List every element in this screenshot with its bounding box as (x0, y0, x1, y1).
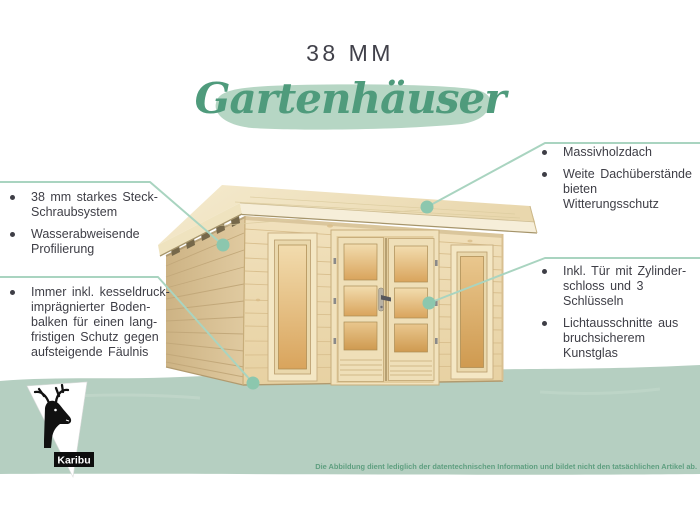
callout-line: Schraubsystem (31, 205, 158, 220)
callout-right-top: Massivholzdach Weite Dachüberstände biet… (540, 145, 698, 219)
callout-line: 38 mm starkes Steck- (31, 190, 158, 205)
callout-item: Immer inkl. kesseldruck- imprägnierter B… (8, 285, 190, 360)
callout-item: Inkl. Tür mit Zylinder- schloss und 3 Sc… (540, 264, 700, 309)
double-door (331, 230, 439, 385)
callout-line: balken für einen lang- (31, 315, 170, 330)
page-title: Gartenhäuser (0, 74, 700, 123)
leader-dot (421, 201, 434, 214)
callout-line: bruchsicherem Kunstglas (563, 331, 700, 361)
callout-line: imprägnierter Boden- (31, 300, 170, 315)
bullet-icon (542, 172, 547, 177)
callout-line: Immer inkl. kesseldruck- (31, 285, 170, 300)
left-window (268, 233, 317, 381)
bullet-icon (542, 150, 547, 155)
callout-line: Wasserabweisende (31, 227, 140, 242)
callout-item: Lichtausschnitte aus bruchsicherem Kunst… (540, 316, 700, 361)
callout-line: aufsteigende Fäulnis (31, 345, 170, 360)
garden-house (158, 185, 537, 385)
callout-left-top: 38 mm starkes Steck- Schraubsystem Wasse… (8, 190, 180, 264)
bullet-icon (10, 195, 15, 200)
bullet-icon (542, 321, 547, 326)
bullet-icon (10, 232, 15, 237)
callout-line: Lichtausschnitte aus (563, 316, 700, 331)
callout-line: Inkl. Tür mit Zylinder- (563, 264, 700, 279)
right-window (451, 245, 493, 379)
callout-line: bieten Witterungsschutz (563, 182, 698, 212)
callout-line: Massivholzdach (563, 145, 652, 160)
callout-line: schloss und 3 Schlüsseln (563, 279, 700, 309)
leader-dot (423, 297, 436, 310)
callout-line: Profilierung (31, 242, 140, 257)
callout-item: Massivholzdach (540, 145, 698, 160)
callout-line: fristigen Schutz gegen (31, 330, 170, 345)
size-label: 38 MM (0, 40, 700, 67)
callout-item: Wasserabweisende Profilierung (8, 227, 180, 257)
leader-dot (217, 239, 230, 252)
callout-line: Weite Dachüberstände (563, 167, 698, 182)
callout-left-bottom: Immer inkl. kesseldruck- imprägnierter B… (8, 285, 190, 367)
disclaimer-text: Die Abbildung dient lediglich der datent… (315, 462, 697, 471)
callout-item: Weite Dachüberstände bieten Witterungssc… (540, 167, 698, 212)
callout-item: 38 mm starkes Steck- Schraubsystem (8, 190, 180, 220)
brand-label: Karibu (57, 455, 90, 467)
leader-dot (247, 377, 260, 390)
callout-right-bottom: Inkl. Tür mit Zylinder- schloss und 3 Sc… (540, 264, 700, 368)
bullet-icon (542, 269, 547, 274)
bullet-icon (10, 290, 15, 295)
poster: Karibu 38 MM Gartenhäuser 38 mm starkes … (0, 0, 700, 525)
